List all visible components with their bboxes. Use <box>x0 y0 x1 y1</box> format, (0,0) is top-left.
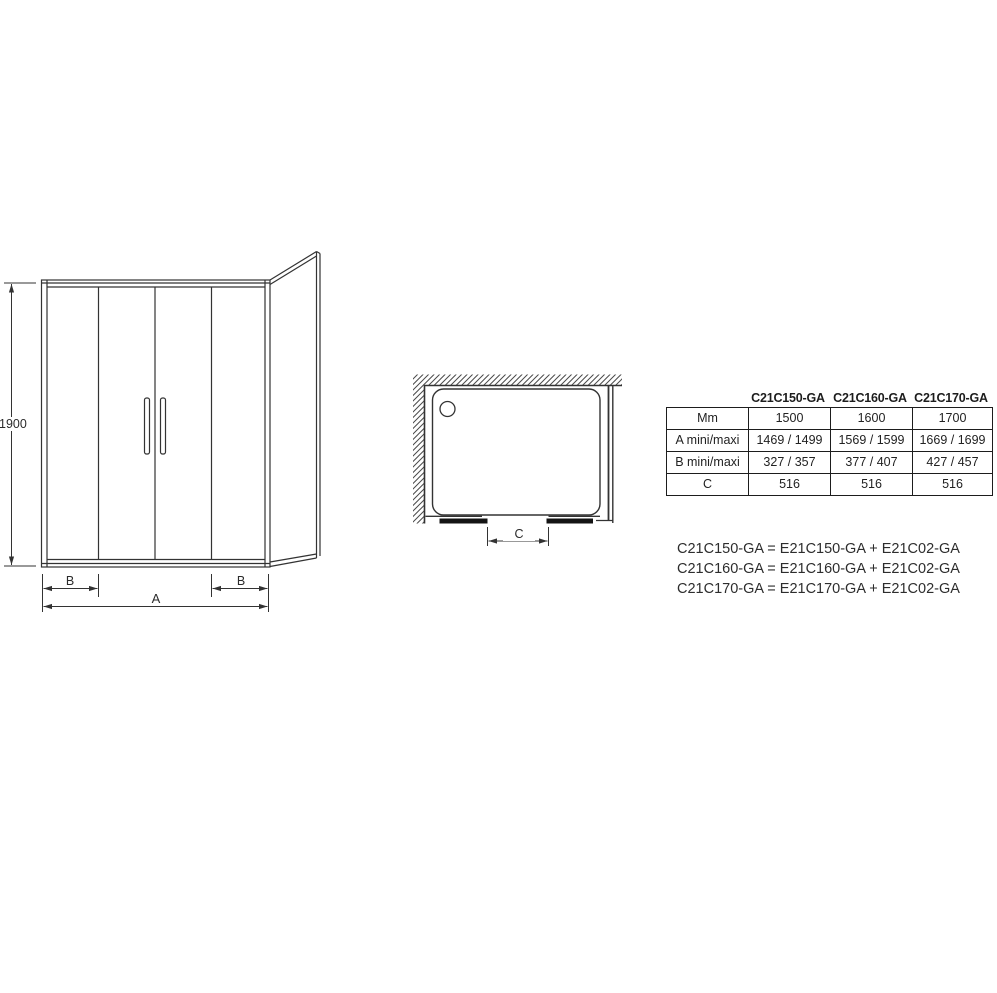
cell-c-170: 516 <box>912 473 992 495</box>
shower-tray <box>433 389 601 515</box>
c-dim-label: C <box>503 527 535 541</box>
front-frame <box>42 280 271 567</box>
formula-list: C21C150-GA = E21C150-GA + E21C02-GA C21C… <box>677 539 960 599</box>
formula-line-1: C21C150-GA = E21C150-GA + E21C02-GA <box>677 539 960 559</box>
cell-mm-170: 1700 <box>912 408 992 429</box>
cell-a-170: 1669 / 1699 <box>912 429 992 451</box>
spec-sheet: 1900 B B A C C21C150-GA C21C160-GA C21C1… <box>0 0 997 993</box>
formula-line-3: C21C170-GA = E21C170-GA + E21C02-GA <box>677 579 960 599</box>
door-handle-right <box>161 398 166 454</box>
row-label-b: B mini/maxi <box>667 451 748 473</box>
spec-table: C21C150-GA C21C160-GA C21C170-GA Mm 1500… <box>666 390 993 496</box>
a-dim-label: A <box>140 592 172 606</box>
plan-view <box>413 375 622 547</box>
front-view <box>42 252 321 568</box>
cell-c-160: 516 <box>830 473 912 495</box>
formula-line-2: C21C160-GA = E21C160-GA + E21C02-GA <box>677 559 960 579</box>
row-label-a: A mini/maxi <box>667 429 748 451</box>
column-header-c21c160: C21C160-GA <box>829 391 911 407</box>
wall-hatching <box>413 375 622 524</box>
side-panel-perspective <box>270 252 320 567</box>
b-right-dim-label: B <box>225 574 257 588</box>
front-view-dimensions <box>4 283 269 612</box>
height-dim-label: 1900 <box>0 417 37 431</box>
diagram-canvas <box>0 0 997 993</box>
cell-a-150: 1469 / 1499 <box>748 429 830 451</box>
spec-table-grid: Mm 1500 1600 1700 A mini/maxi 1469 / 149… <box>666 407 993 496</box>
header-spacer <box>666 405 747 407</box>
column-header-c21c170: C21C170-GA <box>911 391 991 407</box>
cell-b-150: 327 / 357 <box>748 451 830 473</box>
sliding-door-left <box>440 519 488 524</box>
cell-b-170: 427 / 457 <box>912 451 992 473</box>
cell-mm-150: 1500 <box>748 408 830 429</box>
sliding-door-right <box>547 519 594 524</box>
side-panel-plan <box>596 386 613 523</box>
drain-circle <box>440 402 455 417</box>
cell-a-160: 1569 / 1599 <box>830 429 912 451</box>
cell-mm-160: 1600 <box>830 408 912 429</box>
b-left-dim-label: B <box>54 574 86 588</box>
column-header-c21c150: C21C150-GA <box>747 391 829 407</box>
spec-table-header-row: C21C150-GA C21C160-GA C21C170-GA <box>666 390 993 407</box>
cell-c-150: 516 <box>748 473 830 495</box>
row-label-mm: Mm <box>667 408 748 429</box>
row-label-c: C <box>667 473 748 495</box>
door-handle-left <box>145 398 150 454</box>
cell-b-160: 377 / 407 <box>830 451 912 473</box>
